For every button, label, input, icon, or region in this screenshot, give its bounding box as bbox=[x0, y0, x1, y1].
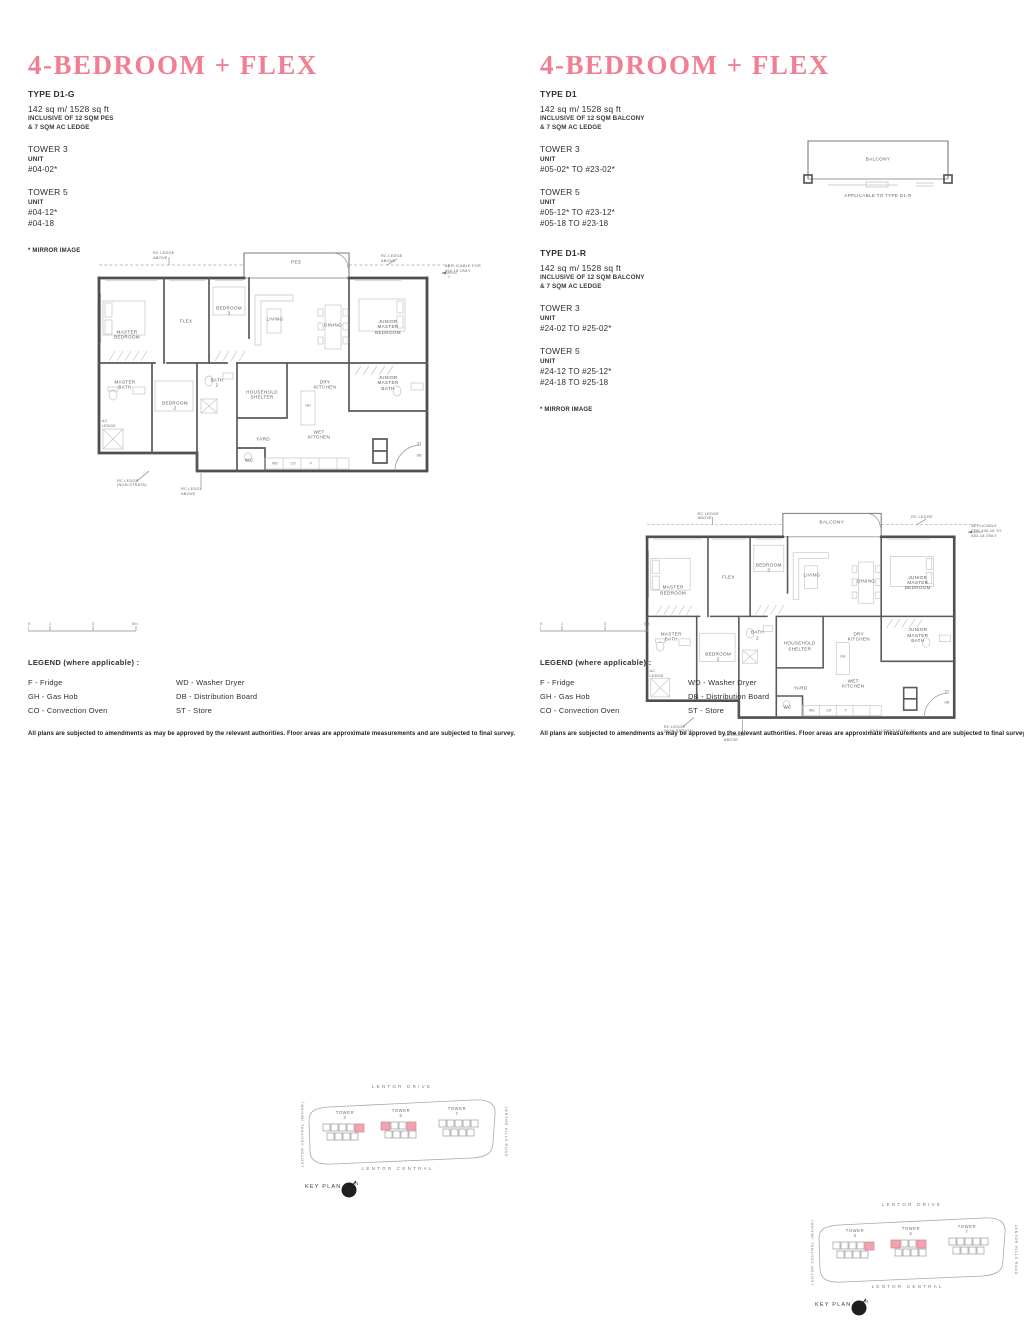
type-inclusive: & 7 SQM AC LEDGE bbox=[28, 124, 193, 133]
legend-item: ST - Store bbox=[688, 704, 769, 718]
plan-note-rc-ledge-above: RC LEDGE ABOVE bbox=[698, 512, 720, 522]
room-label-st: ST bbox=[945, 690, 949, 695]
room-label-bath-2: BATH 2 bbox=[210, 378, 223, 389]
plan-note-rc-ledge-above-bottom: RC LEDGE ABOVE bbox=[181, 487, 203, 497]
type-inclusive: INCLUSIVE OF 12 SQM BALCONY bbox=[540, 274, 705, 283]
room-label-master-bedroom: MASTER BEDROOM bbox=[114, 330, 140, 341]
unit-number: #04-18 bbox=[28, 218, 193, 229]
svg-text:1: 1 bbox=[49, 622, 52, 626]
legend-item: WD - Washer Dryer bbox=[688, 676, 769, 690]
room-label-yard: YARD bbox=[256, 436, 270, 441]
room-label-st: ST bbox=[417, 441, 421, 446]
legend-col-2: WD - Washer Dryer DB - Distribution Boar… bbox=[176, 676, 257, 718]
plan-note-ac-ledge: AC LEDGE bbox=[102, 419, 116, 429]
tower-block: TOWER 3 UNIT #24-02 TO #25-02* bbox=[540, 302, 705, 334]
svg-text:5m: 5m bbox=[132, 622, 138, 626]
balcony-label: BALCONY bbox=[866, 157, 891, 162]
unit-heading: UNIT bbox=[540, 357, 705, 366]
legend-item: ST - Store bbox=[176, 704, 257, 718]
legend-item: WD - Washer Dryer bbox=[176, 676, 257, 690]
unit-heading: UNIT bbox=[540, 155, 705, 164]
tower-name: TOWER 3 bbox=[540, 302, 705, 314]
room-label-junior-master-bath: JUNIOR MASTER BATH bbox=[907, 627, 928, 643]
unit-heading: UNIT bbox=[540, 314, 705, 323]
tower-name: TOWER 3 bbox=[540, 143, 705, 155]
unit-number: #24-12 TO #25-12* bbox=[540, 366, 705, 377]
tower-5-label: TOWER 5 bbox=[891, 1226, 931, 1236]
room-label-wet-kitchen: WET KITCHEN bbox=[308, 430, 330, 441]
unit-number: #04-02* bbox=[28, 164, 193, 175]
svg-text:N: N bbox=[355, 1181, 358, 1186]
plan-note-applicability: APPLICABLE FOR #05-18 TO #23-18 ONLY bbox=[971, 524, 1022, 538]
type-inclusive: & 7 SQM AC LEDGE bbox=[540, 283, 705, 292]
tower-7-label: TOWER 7 bbox=[437, 1106, 477, 1116]
plan-note-rc-ledge-above: RC LEDGE ABOVE bbox=[153, 251, 175, 261]
legend-title: LEGEND (where applicable) : bbox=[28, 658, 328, 667]
type-name: TYPE D1 bbox=[540, 88, 705, 100]
tower-block: TOWER 3 UNIT #04-02* bbox=[28, 143, 193, 175]
key-plan-label: KEY PLAN bbox=[305, 1184, 341, 1190]
svg-text:3: 3 bbox=[92, 622, 95, 626]
plan-note-applicability: APPLICABLE FOR #04-18 ONLY bbox=[445, 264, 499, 274]
room-label-master-bedroom: MASTER BEDROOM bbox=[660, 585, 686, 596]
room-label-wc: WC bbox=[245, 457, 253, 462]
room-label-gh: GH bbox=[840, 654, 845, 659]
scale-bar: 0 1 3 5m bbox=[28, 622, 140, 634]
unit-number: #24-02 TO #25-02* bbox=[540, 323, 705, 334]
legend-item: DB - Distribution Board bbox=[688, 690, 769, 704]
svg-text:1: 1 bbox=[561, 622, 564, 626]
tower-block: TOWER 3 UNIT #05-02* TO #23-02* bbox=[540, 143, 705, 175]
north-arrow-icon: N bbox=[339, 1179, 359, 1199]
room-label-wet-kitchen: WET KITCHEN bbox=[842, 678, 864, 689]
tower-5-label: TOWER 5 bbox=[381, 1108, 421, 1118]
tower-block: TOWER 5 UNIT #05-12* TO #23-12* #05-18 T… bbox=[540, 186, 705, 229]
tower-7-label: TOWER 7 bbox=[947, 1224, 987, 1234]
room-label-master-bath: MASTER BATH bbox=[661, 632, 682, 643]
type-name: TYPE D1-G bbox=[28, 88, 193, 100]
scale-bar: 0 1 3 5m bbox=[540, 622, 652, 634]
type-block: TYPE D1-R 142 sq m/ 1528 sq ft INCLUSIVE… bbox=[540, 247, 705, 388]
type-inclusive: INCLUSIVE OF 12 SQM PES bbox=[28, 115, 193, 124]
outdoor-space-label: BALCONY bbox=[819, 519, 844, 524]
key-plan-left: LENTOR DRIVE LENTOR CENTRAL LENTOR CENTR… bbox=[293, 1084, 511, 1202]
unit-info-left: TYPE D1-G 142 sq m/ 1528 sq ft INCLUSIVE… bbox=[28, 88, 193, 257]
room-label-flex: FLEX bbox=[180, 318, 193, 323]
svg-text:5m: 5m bbox=[644, 622, 650, 626]
floor-plan-left: PES RC LEDGE ABOVE RC LEDGE ABOVE APPLIC… bbox=[97, 243, 497, 495]
mirror-note: * MIRROR IMAGE bbox=[540, 404, 705, 416]
tower-name: TOWER 5 bbox=[28, 186, 193, 198]
unit-number: #24-18 TO #25-18 bbox=[540, 377, 705, 388]
type-inclusive: & 7 SQM AC LEDGE bbox=[540, 124, 705, 133]
unit-heading: UNIT bbox=[540, 198, 705, 207]
room-label-bedroom-2: BEDROOM 2 bbox=[162, 401, 188, 412]
legend-item: DB - Distribution Board bbox=[176, 690, 257, 704]
room-label-bath-2: BATH 2 bbox=[751, 630, 764, 641]
legend-right: LEGEND (where applicable) : F - Fridge G… bbox=[540, 658, 840, 718]
page-title-right: 4-BEDROOM + FLEX bbox=[540, 50, 830, 81]
room-label-f: F bbox=[845, 708, 847, 713]
room-label-bedroom-3: BEDROOM 3 bbox=[216, 306, 242, 317]
room-label-gh: GH bbox=[305, 403, 310, 408]
unit-heading: UNIT bbox=[28, 155, 193, 164]
room-label-co: CO bbox=[290, 461, 295, 466]
svg-text:0: 0 bbox=[540, 622, 543, 626]
room-label-dry-kitchen: DRY KITCHEN bbox=[848, 632, 870, 643]
room-label-dining: DINING bbox=[324, 322, 342, 327]
north-arrow-icon: N bbox=[849, 1297, 869, 1317]
room-label-bedroom-3: BEDROOM 3 bbox=[756, 562, 782, 573]
room-label-db: DB bbox=[945, 701, 950, 706]
disclaimer-left: All plans are subjected to amendments as… bbox=[28, 731, 515, 737]
room-label-household-shelter: HOUSEHOLD SHELTER bbox=[246, 390, 278, 401]
plan-note-rc-ledge-nonstrata: RC LEDGE (NON-STRATA) bbox=[117, 479, 147, 489]
brochure-page: { "accent_color": "#f27e93", "highlight_… bbox=[0, 0, 1024, 791]
room-label-junior-master-bath: JUNIOR MASTER BATH bbox=[378, 375, 399, 391]
unit-number: #05-18 TO #23-18 bbox=[540, 218, 705, 229]
floor-plan-drawing bbox=[97, 243, 497, 495]
legend-title: LEGEND (where applicable) : bbox=[540, 658, 840, 667]
balcony-detail-caption: APPLICABLE TO TYPE D1-R bbox=[788, 193, 968, 198]
disclaimer-right: All plans are subjected to amendments as… bbox=[540, 731, 1024, 737]
svg-text:N: N bbox=[865, 1299, 868, 1304]
tower-3-label: TOWER 3 bbox=[835, 1228, 875, 1238]
room-label-household-shelter: HOUSEHOLD SHELTER bbox=[784, 641, 816, 652]
svg-text:0: 0 bbox=[28, 622, 31, 626]
type-inclusive: INCLUSIVE OF 12 SQM BALCONY bbox=[540, 115, 705, 124]
room-label-junior-master-bedroom: JUNIOR MASTER BEDROOM bbox=[905, 575, 931, 591]
legend-col-2: WD - Washer Dryer DB - Distribution Boar… bbox=[688, 676, 769, 718]
tower-name: TOWER 5 bbox=[540, 186, 705, 198]
unit-number: #05-12* TO #23-12* bbox=[540, 207, 705, 218]
tower-3-label: TOWER 3 bbox=[325, 1110, 365, 1120]
unit-heading: UNIT bbox=[28, 198, 193, 207]
tower-block: TOWER 5 UNIT #24-12 TO #25-12* #24-18 TO… bbox=[540, 345, 705, 388]
room-label-dry-kitchen: DRY KITCHEN bbox=[314, 380, 336, 391]
type-area: 142 sq m/ 1528 sq ft bbox=[540, 262, 705, 274]
room-label-living: LIVING bbox=[267, 316, 284, 321]
type-area: 142 sq m/ 1528 sq ft bbox=[28, 103, 193, 115]
room-label-junior-master-bedroom: JUNIOR MASTER BEDROOM bbox=[375, 319, 401, 335]
type-area: 142 sq m/ 1528 sq ft bbox=[540, 103, 705, 115]
unit-info-right: TYPE D1 142 sq m/ 1528 sq ft INCLUSIVE O… bbox=[540, 88, 705, 416]
unit-number: #05-02* TO #23-02* bbox=[540, 164, 705, 175]
plan-note-rc-ledge: RC LEDGE ABOVE bbox=[381, 254, 403, 264]
key-plan-right: LENTOR DRIVE LENTOR CENTRAL LENTOR CENTR… bbox=[803, 1202, 1021, 1320]
outdoor-space-label: PES bbox=[291, 259, 301, 264]
svg-text:3: 3 bbox=[604, 622, 607, 626]
room-label-dining: DINING bbox=[857, 578, 875, 583]
room-label-flex: FLEX bbox=[722, 574, 735, 579]
unit-number: #04-12* bbox=[28, 207, 193, 218]
room-label-wd: WD bbox=[272, 461, 278, 466]
type-name: TYPE D1-R bbox=[540, 247, 705, 259]
room-label-f: F bbox=[310, 461, 312, 466]
balcony-detail: BALCONY APPLICABLE TO TYPE D1-R bbox=[788, 133, 968, 198]
tower-block: TOWER 5 UNIT #04-12* #04-18 bbox=[28, 186, 193, 229]
room-label-living: LIVING bbox=[803, 572, 820, 577]
tower-name: TOWER 5 bbox=[540, 345, 705, 357]
legend-left: LEGEND (where applicable) : F - Fridge G… bbox=[28, 658, 328, 718]
tower-name: TOWER 3 bbox=[28, 143, 193, 155]
key-plan-label: KEY PLAN bbox=[815, 1302, 851, 1308]
room-label-master-bath: MASTER BATH bbox=[115, 380, 136, 391]
plan-note-rc-ledge: RC LEDGE bbox=[911, 515, 933, 520]
room-label-db: DB bbox=[417, 453, 422, 458]
page-title-left: 4-BEDROOM + FLEX bbox=[28, 50, 318, 81]
